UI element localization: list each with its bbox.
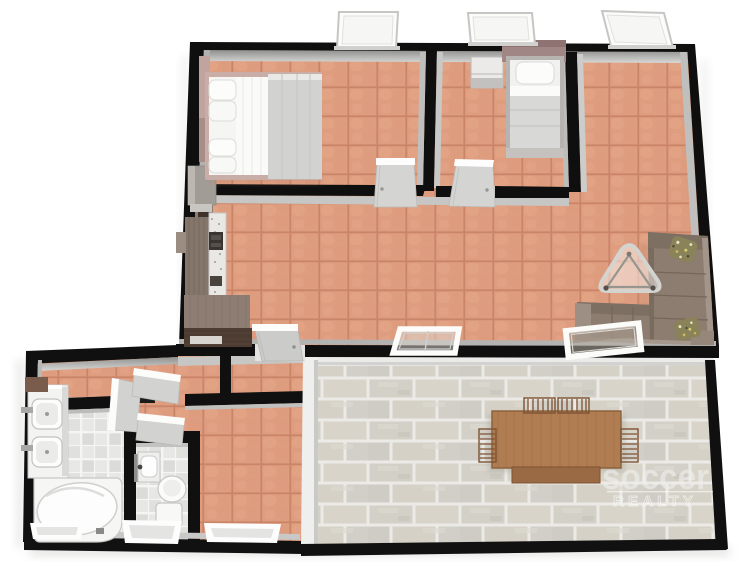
svg-text:REALTY: REALTY (613, 493, 697, 510)
svg-text:soccer: soccer (602, 456, 709, 497)
